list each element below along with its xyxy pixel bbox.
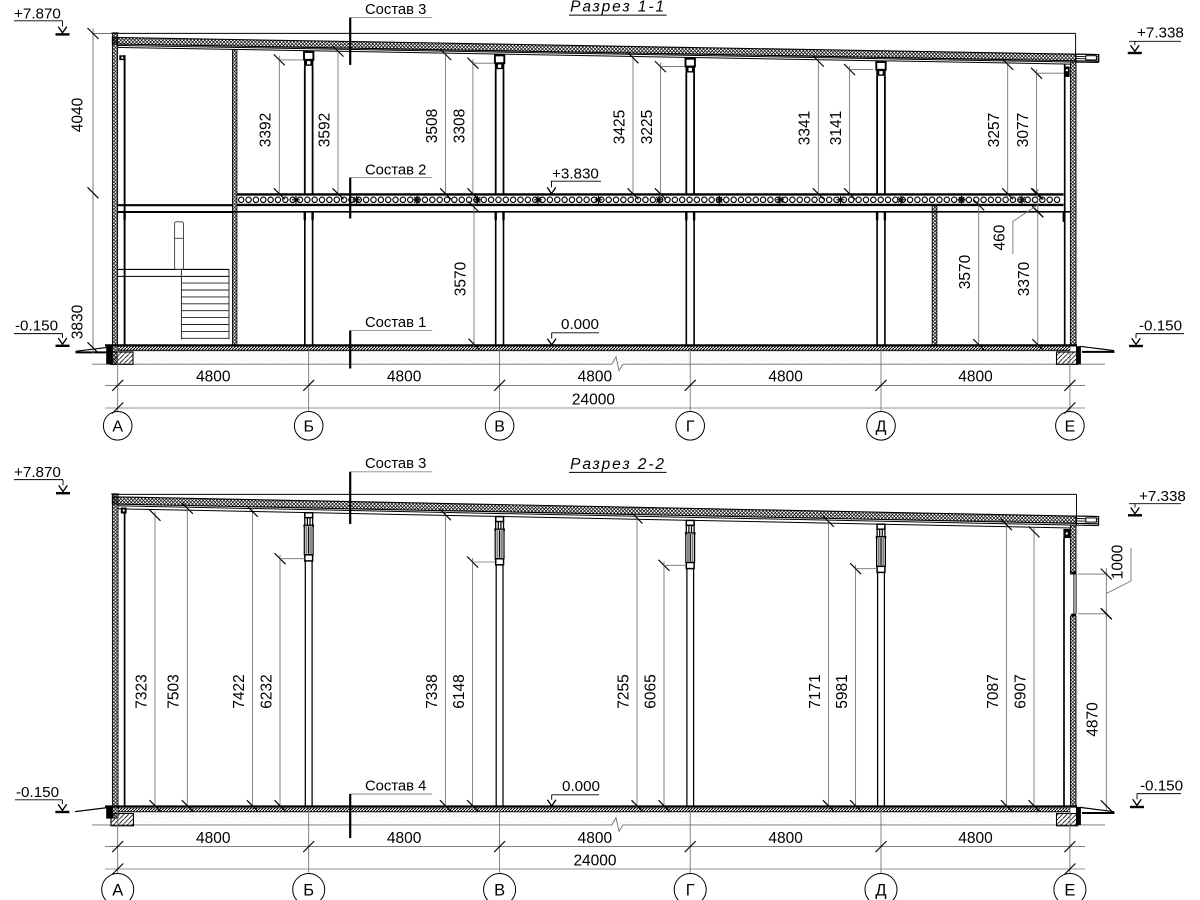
svg-text:3257: 3257	[986, 113, 1003, 147]
svg-text:4800: 4800	[578, 369, 613, 386]
svg-text:3370: 3370	[1016, 261, 1033, 296]
svg-text:6232: 6232	[258, 674, 275, 708]
svg-text:7338: 7338	[424, 674, 441, 708]
svg-text:-0.150: -0.150	[1139, 318, 1182, 335]
svg-text:3392: 3392	[258, 113, 275, 147]
svg-text:Е: Е	[1065, 418, 1076, 435]
svg-text:Разрез 1-1: Разрез 1-1	[570, 0, 666, 16]
svg-text:+7.338: +7.338	[1137, 25, 1184, 42]
svg-text:0.000: 0.000	[562, 778, 600, 795]
svg-text:Д: Д	[875, 882, 886, 900]
svg-text:4800: 4800	[768, 369, 803, 386]
svg-text:6065: 6065	[642, 674, 659, 708]
svg-text:В: В	[494, 418, 505, 435]
svg-text:1000: 1000	[1110, 544, 1127, 579]
svg-text:3592: 3592	[316, 113, 333, 147]
svg-text:Состав 4: Состав 4	[365, 778, 426, 794]
svg-text:4800: 4800	[196, 830, 231, 847]
svg-text:7087: 7087	[985, 674, 1002, 708]
svg-text:3141: 3141	[828, 111, 845, 145]
svg-text:Б: Б	[303, 882, 314, 900]
svg-text:24000: 24000	[572, 392, 615, 409]
svg-text:7255: 7255	[615, 674, 632, 708]
svg-text:3570: 3570	[452, 261, 469, 296]
svg-text:3225: 3225	[639, 110, 656, 144]
svg-text:Е: Е	[1064, 882, 1075, 900]
svg-text:Состав 3: Состав 3	[365, 2, 426, 18]
svg-text:24000: 24000	[573, 852, 616, 869]
svg-text:А: А	[112, 882, 123, 900]
svg-text:Д: Д	[876, 418, 887, 435]
svg-text:4800: 4800	[958, 830, 993, 847]
svg-text:6148: 6148	[451, 674, 468, 708]
svg-text:+7.338: +7.338	[1139, 488, 1186, 505]
svg-text:4800: 4800	[387, 369, 422, 386]
svg-text:А: А	[112, 418, 123, 435]
svg-text:7323: 7323	[133, 674, 150, 708]
svg-text:4040: 4040	[70, 97, 87, 132]
svg-text:Б: Б	[303, 418, 314, 435]
svg-text:+7.870: +7.870	[14, 464, 61, 481]
svg-text:4870: 4870	[1085, 702, 1102, 737]
svg-text:4800: 4800	[196, 369, 231, 386]
svg-text:3425: 3425	[611, 110, 628, 144]
svg-text:-0.150: -0.150	[15, 318, 58, 335]
svg-text:3077: 3077	[1015, 113, 1032, 147]
svg-text:3341: 3341	[797, 111, 814, 145]
svg-text:460: 460	[991, 224, 1008, 250]
svg-text:3308: 3308	[451, 109, 468, 143]
svg-text:4800: 4800	[387, 830, 422, 847]
svg-text:3508: 3508	[424, 109, 441, 143]
svg-text:+3.830: +3.830	[552, 165, 599, 182]
svg-text:6907: 6907	[1012, 674, 1029, 708]
svg-text:4800: 4800	[768, 830, 803, 847]
svg-text:Состав 3: Состав 3	[365, 456, 426, 472]
svg-text:Разрез 2-2: Разрез 2-2	[570, 456, 666, 473]
svg-text:3830: 3830	[70, 304, 87, 339]
svg-text:7171: 7171	[807, 674, 824, 708]
svg-text:3570: 3570	[957, 254, 974, 289]
svg-text:+7.870: +7.870	[14, 6, 61, 23]
svg-text:Состав 2: Состав 2	[365, 162, 426, 178]
svg-text:-0.150: -0.150	[16, 784, 59, 801]
svg-text:7422: 7422	[231, 674, 248, 708]
svg-text:4800: 4800	[958, 369, 993, 386]
svg-text:Г: Г	[686, 418, 695, 435]
svg-text:4800: 4800	[578, 830, 613, 847]
svg-text:7503: 7503	[166, 674, 183, 708]
svg-text:Состав 1: Состав 1	[365, 315, 426, 331]
svg-text:5981: 5981	[834, 674, 851, 708]
svg-text:Г: Г	[686, 882, 695, 900]
svg-text:0.000: 0.000	[561, 316, 599, 333]
svg-text:-0.150: -0.150	[1140, 778, 1183, 795]
svg-text:В: В	[494, 882, 505, 900]
